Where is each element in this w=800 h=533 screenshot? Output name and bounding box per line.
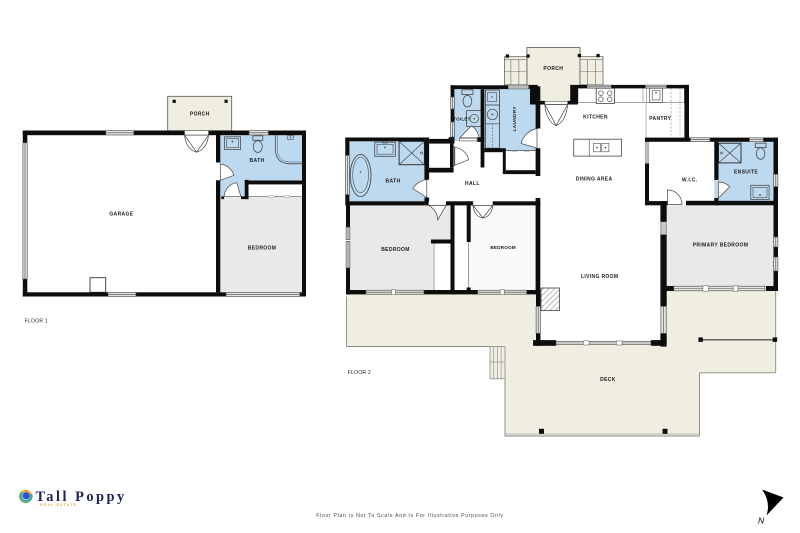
svg-text:DINING AREA: DINING AREA bbox=[576, 177, 613, 183]
svg-text:N: N bbox=[758, 516, 765, 526]
svg-text:FLOOR 2: FLOOR 2 bbox=[348, 370, 372, 376]
svg-text:FLOOR 1: FLOOR 1 bbox=[25, 318, 48, 324]
svg-text:KITCHEN: KITCHEN bbox=[583, 115, 608, 121]
svg-text:BEDROOM: BEDROOM bbox=[490, 245, 515, 250]
svg-text:BEDROOM: BEDROOM bbox=[381, 247, 410, 253]
svg-text:REAL ESTATE: REAL ESTATE bbox=[40, 503, 77, 507]
svg-text:PRIMARY BEDROOM: PRIMARY BEDROOM bbox=[693, 242, 749, 248]
svg-text:ENSUITE: ENSUITE bbox=[734, 169, 758, 175]
svg-text:PANTRY: PANTRY bbox=[649, 116, 671, 122]
svg-text:BATH: BATH bbox=[250, 158, 265, 164]
svg-text:HALL: HALL bbox=[465, 181, 480, 187]
svg-text:BEDROOM: BEDROOM bbox=[248, 245, 277, 251]
svg-text:W.I.C.: W.I.C. bbox=[682, 178, 698, 184]
svg-text:GARAGE: GARAGE bbox=[109, 212, 133, 218]
svg-text:Floor Plan Is Not To Scale And: Floor Plan Is Not To Scale And Is For Il… bbox=[316, 513, 503, 519]
svg-text:DECK: DECK bbox=[600, 377, 616, 383]
svg-text:LAUNDRY: LAUNDRY bbox=[512, 106, 518, 132]
svg-text:BATH: BATH bbox=[386, 179, 401, 185]
svg-text:LIVING ROOM: LIVING ROOM bbox=[581, 274, 618, 280]
svg-text:PORCH: PORCH bbox=[190, 111, 210, 117]
svg-text:PORCH: PORCH bbox=[543, 66, 563, 72]
svg-text:TOILET: TOILET bbox=[453, 117, 470, 122]
